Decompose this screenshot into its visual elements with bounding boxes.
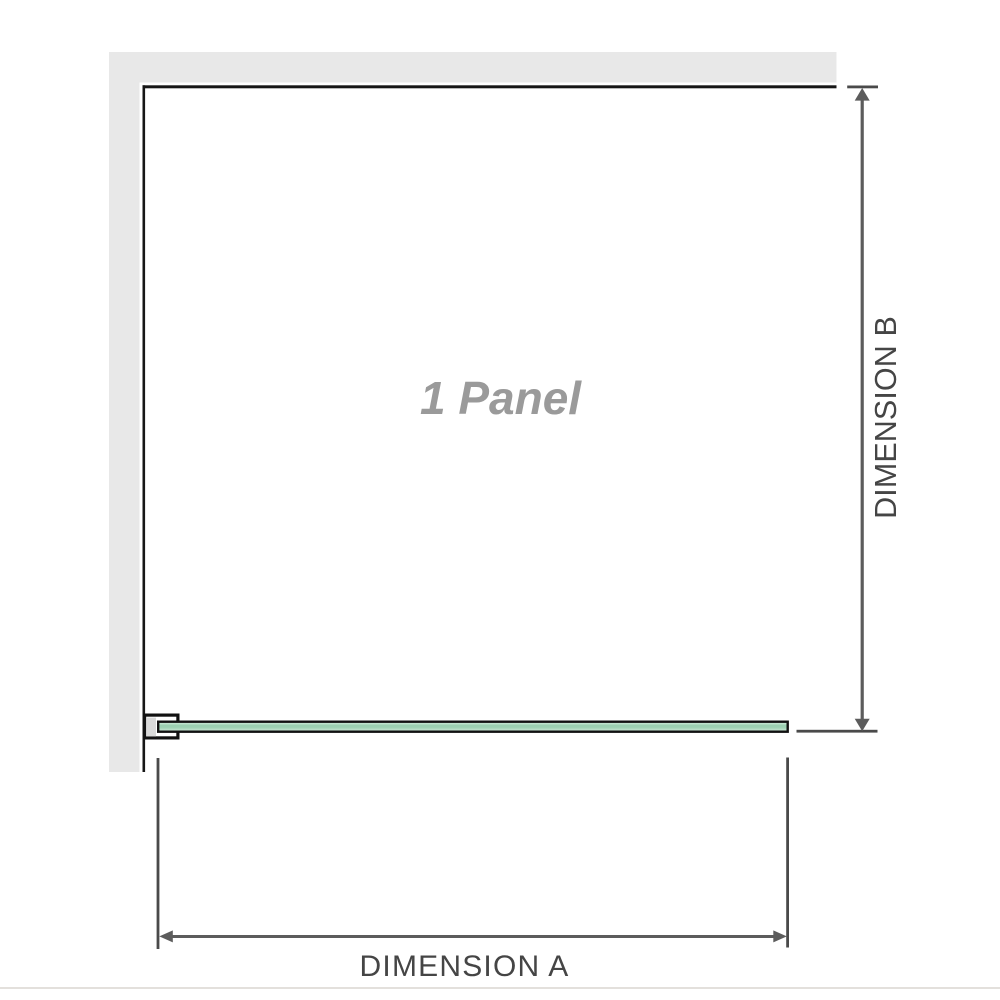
- svg-text:DIMENSION A: DIMENSION A: [360, 950, 570, 983]
- svg-text:DIMENSION B: DIMENSION B: [869, 316, 903, 519]
- svg-text:1 Panel: 1 Panel: [420, 372, 582, 424]
